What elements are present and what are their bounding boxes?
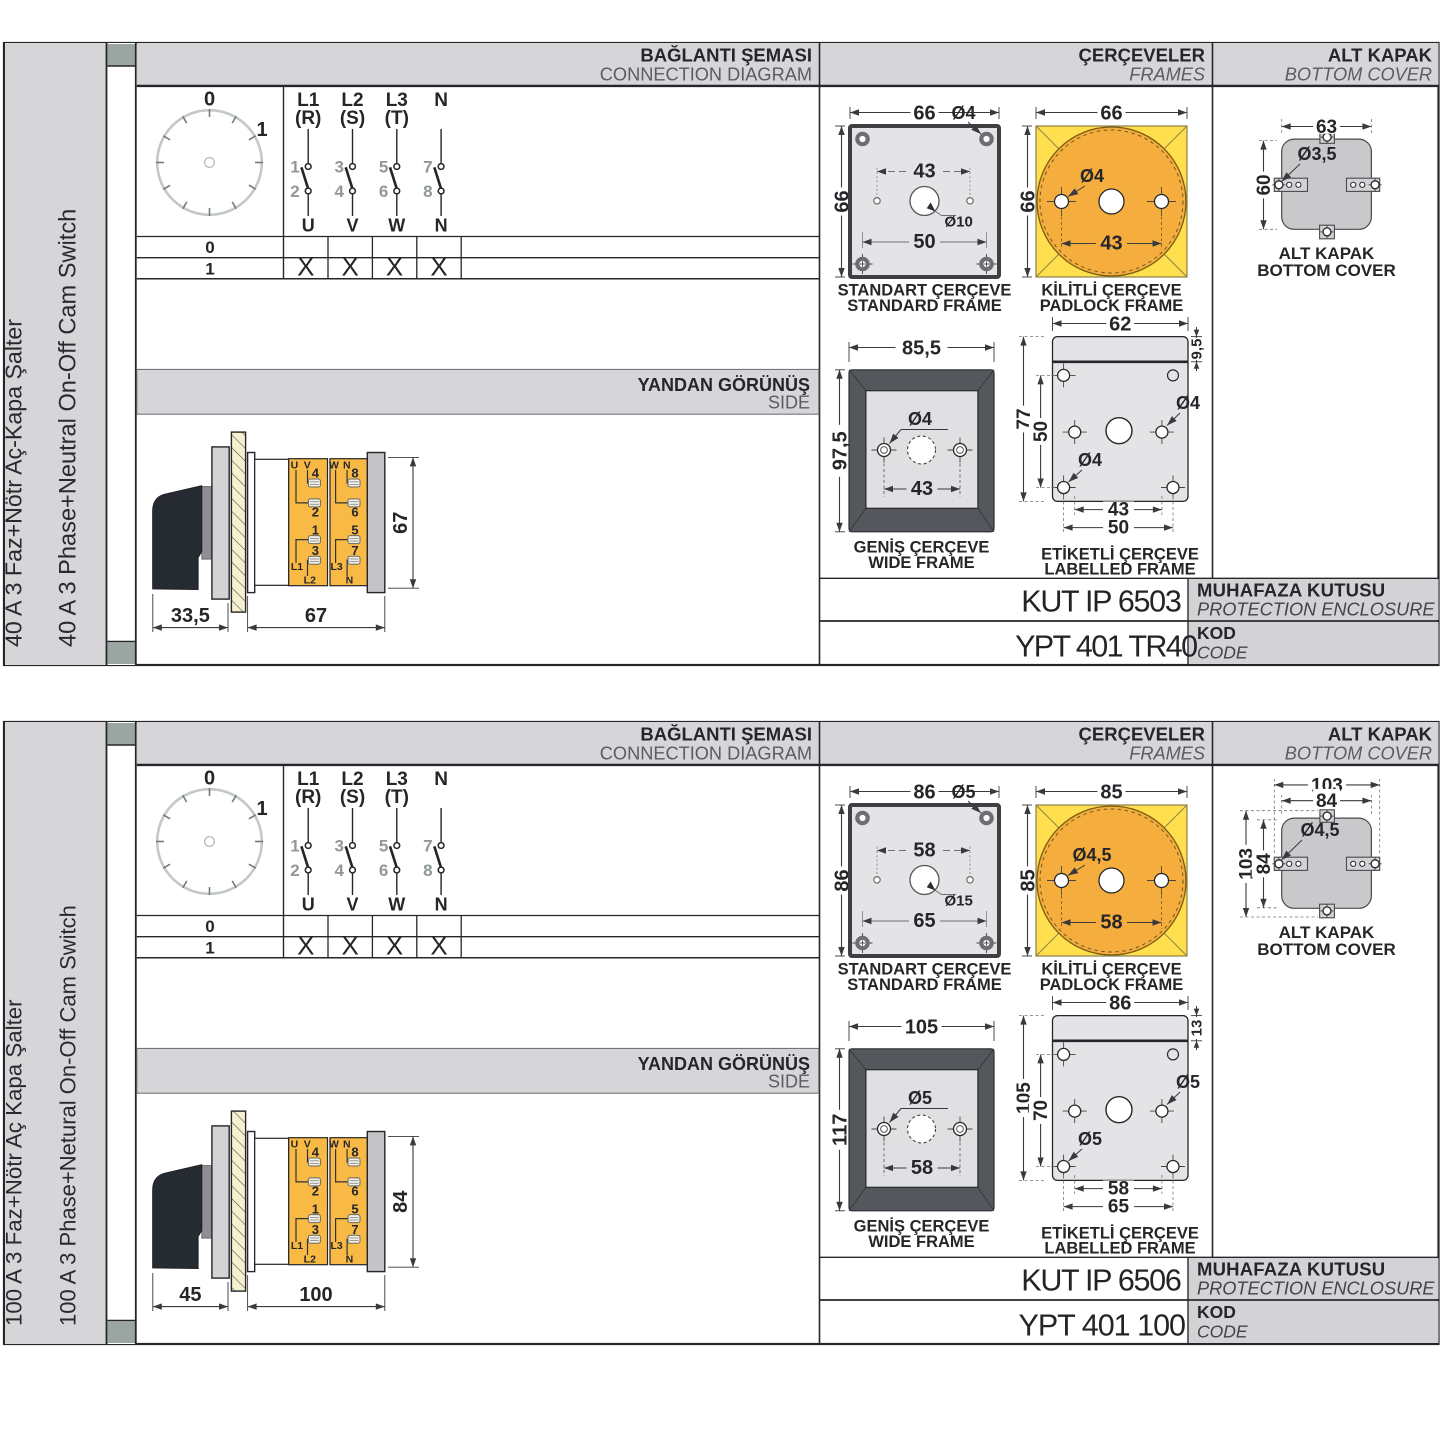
svg-text:CODE: CODE bbox=[1197, 1322, 1248, 1342]
svg-text:45: 45 bbox=[179, 1284, 201, 1306]
svg-text:43: 43 bbox=[911, 478, 933, 500]
svg-text:U: U bbox=[291, 1139, 299, 1151]
svg-text:N: N bbox=[435, 216, 448, 236]
svg-text:8: 8 bbox=[351, 466, 358, 481]
svg-text:6: 6 bbox=[351, 1184, 358, 1199]
svg-text:105: 105 bbox=[905, 1016, 938, 1038]
svg-text:5: 5 bbox=[379, 837, 388, 856]
svg-text:4: 4 bbox=[335, 182, 345, 201]
svg-text:Ø4: Ø4 bbox=[1080, 166, 1104, 186]
svg-text:67: 67 bbox=[390, 512, 412, 534]
svg-text:V: V bbox=[304, 460, 311, 472]
svg-text:1: 1 bbox=[256, 119, 267, 141]
svg-text:L3: L3 bbox=[330, 1240, 342, 1252]
svg-text:8: 8 bbox=[423, 861, 432, 880]
svg-text:7: 7 bbox=[351, 543, 358, 558]
svg-text:ALT KAPAK: ALT KAPAK bbox=[1279, 923, 1375, 942]
svg-text:BOTTOM COVER: BOTTOM COVER bbox=[1257, 940, 1396, 959]
svg-text:W: W bbox=[388, 216, 405, 236]
svg-text:7: 7 bbox=[423, 837, 432, 856]
svg-text:66: 66 bbox=[913, 102, 935, 124]
svg-text:62: 62 bbox=[1109, 313, 1131, 335]
svg-text:43: 43 bbox=[913, 161, 935, 183]
svg-text:85,5: 85,5 bbox=[902, 337, 941, 359]
svg-text:2: 2 bbox=[290, 182, 299, 201]
svg-text:50: 50 bbox=[913, 231, 935, 253]
svg-text:BOTTOM COVER: BOTTOM COVER bbox=[1285, 65, 1432, 85]
svg-text:66: 66 bbox=[1100, 102, 1122, 124]
svg-text:2: 2 bbox=[290, 861, 299, 880]
svg-text:117: 117 bbox=[829, 1114, 851, 1146]
svg-text:6: 6 bbox=[379, 182, 388, 201]
svg-text:0: 0 bbox=[204, 89, 215, 111]
svg-text:Ø4: Ø4 bbox=[1078, 450, 1102, 470]
svg-text:N: N bbox=[434, 769, 448, 790]
svg-text:N: N bbox=[346, 1254, 354, 1266]
svg-text:Ø5: Ø5 bbox=[1078, 1129, 1102, 1149]
svg-text:13: 13 bbox=[1189, 1020, 1206, 1037]
svg-text:7: 7 bbox=[351, 1222, 358, 1237]
svg-text:60: 60 bbox=[1254, 174, 1275, 195]
svg-text:Ø4: Ø4 bbox=[1176, 393, 1200, 413]
svg-text:(R): (R) bbox=[295, 108, 321, 129]
svg-text:Ø4: Ø4 bbox=[908, 409, 932, 429]
svg-text:100: 100 bbox=[299, 1284, 332, 1306]
svg-text:STANDARD FRAME: STANDARD FRAME bbox=[847, 976, 1002, 994]
svg-text:5: 5 bbox=[379, 158, 388, 177]
svg-text:84: 84 bbox=[1254, 853, 1275, 875]
svg-text:WIDE FRAME: WIDE FRAME bbox=[868, 554, 974, 572]
svg-text:L3: L3 bbox=[330, 561, 342, 573]
svg-text:86: 86 bbox=[1109, 992, 1131, 1014]
svg-text:Ø4: Ø4 bbox=[951, 103, 975, 123]
svg-text:67: 67 bbox=[305, 605, 327, 627]
svg-text:33,5: 33,5 bbox=[171, 605, 210, 627]
svg-text:YPT 401 TR40: YPT 401 TR40 bbox=[1015, 630, 1197, 664]
svg-text:L2: L2 bbox=[304, 575, 316, 587]
svg-text:Ø10: Ø10 bbox=[945, 214, 973, 231]
svg-text:X: X bbox=[430, 252, 447, 282]
svg-text:1: 1 bbox=[312, 1202, 319, 1217]
svg-text:100 A 3 Phase+Netural On-Off C: 100 A 3 Phase+Netural On-Off Cam Switch bbox=[56, 905, 81, 1326]
svg-text:2: 2 bbox=[312, 505, 319, 520]
svg-text:N: N bbox=[346, 575, 354, 587]
svg-text:X: X bbox=[342, 252, 359, 282]
svg-text:X: X bbox=[386, 252, 403, 282]
svg-text:FRAMES: FRAMES bbox=[1129, 65, 1205, 85]
svg-text:BAĞLANTI ŞEMASI: BAĞLANTI ŞEMASI bbox=[640, 45, 812, 66]
svg-text:WIDE FRAME: WIDE FRAME bbox=[868, 1233, 974, 1251]
svg-text:YPT 401 100: YPT 401 100 bbox=[1019, 1309, 1186, 1343]
svg-text:40 A 3 Faz+Nötr Aç-Kapa Şalter: 40 A 3 Faz+Nötr Aç-Kapa Şalter bbox=[1, 319, 27, 647]
svg-text:U: U bbox=[291, 460, 299, 472]
svg-text:LABELLED FRAME: LABELLED FRAME bbox=[1044, 1240, 1195, 1258]
svg-text:BAĞLANTI ŞEMASI: BAĞLANTI ŞEMASI bbox=[640, 724, 812, 745]
svg-text:84: 84 bbox=[390, 1190, 412, 1213]
svg-text:85: 85 bbox=[1100, 781, 1122, 803]
svg-text:0: 0 bbox=[205, 238, 214, 257]
svg-text:58: 58 bbox=[913, 840, 935, 862]
svg-text:BOTTOM COVER: BOTTOM COVER bbox=[1285, 744, 1432, 764]
svg-text:(S): (S) bbox=[340, 787, 365, 808]
svg-text:Ø4,5: Ø4,5 bbox=[1300, 820, 1339, 840]
svg-text:5: 5 bbox=[351, 1202, 358, 1217]
svg-text:5: 5 bbox=[351, 523, 358, 538]
svg-text:65: 65 bbox=[1108, 1197, 1130, 1218]
svg-text:3: 3 bbox=[335, 837, 344, 856]
svg-text:1: 1 bbox=[205, 939, 214, 958]
svg-text:6: 6 bbox=[351, 505, 358, 520]
svg-text:W: W bbox=[388, 895, 405, 915]
svg-text:N: N bbox=[343, 1139, 351, 1151]
svg-text:MUHAFAZA KUTUSU: MUHAFAZA KUTUSU bbox=[1197, 1259, 1385, 1280]
svg-text:0: 0 bbox=[204, 768, 215, 790]
svg-text:9,5: 9,5 bbox=[1189, 339, 1206, 360]
svg-text:Ø4,5: Ø4,5 bbox=[1072, 845, 1111, 865]
svg-text:4: 4 bbox=[335, 861, 345, 880]
svg-text:1: 1 bbox=[290, 837, 299, 856]
svg-text:(T): (T) bbox=[385, 787, 409, 808]
svg-text:MUHAFAZA KUTUSU: MUHAFAZA KUTUSU bbox=[1197, 580, 1385, 601]
svg-text:(T): (T) bbox=[385, 108, 409, 129]
svg-text:50: 50 bbox=[1108, 518, 1129, 539]
svg-text:Ø5: Ø5 bbox=[1176, 1072, 1200, 1092]
svg-text:1: 1 bbox=[205, 260, 214, 279]
svg-text:KOD: KOD bbox=[1197, 623, 1236, 643]
svg-text:V: V bbox=[346, 216, 358, 236]
svg-text:3: 3 bbox=[312, 543, 319, 558]
svg-text:N: N bbox=[343, 460, 351, 472]
svg-text:4: 4 bbox=[312, 1145, 320, 1160]
svg-text:V: V bbox=[304, 1139, 311, 1151]
svg-text:97,5: 97,5 bbox=[829, 431, 851, 470]
svg-text:SIDE: SIDE bbox=[768, 1072, 810, 1092]
svg-text:X: X bbox=[342, 931, 359, 961]
svg-text:6: 6 bbox=[379, 861, 388, 880]
svg-text:FRAMES: FRAMES bbox=[1129, 744, 1205, 764]
svg-text:W: W bbox=[329, 1139, 339, 1151]
svg-text:ÇERÇEVELER: ÇERÇEVELER bbox=[1079, 45, 1205, 66]
svg-text:Ø15: Ø15 bbox=[945, 893, 973, 910]
svg-text:X: X bbox=[386, 931, 403, 961]
svg-text:V: V bbox=[346, 895, 358, 915]
svg-text:KUT IP 6503: KUT IP 6503 bbox=[1021, 584, 1181, 618]
svg-text:KOD: KOD bbox=[1197, 1302, 1236, 1322]
svg-text:X: X bbox=[297, 931, 314, 961]
svg-text:1: 1 bbox=[256, 798, 267, 820]
svg-text:50: 50 bbox=[1031, 421, 1052, 442]
svg-text:0: 0 bbox=[205, 917, 214, 936]
svg-text:1: 1 bbox=[290, 158, 299, 177]
svg-text:40 A 3 Phase+Neutral On-Off Ca: 40 A 3 Phase+Neutral On-Off Cam Switch bbox=[56, 209, 82, 647]
svg-text:(R): (R) bbox=[295, 787, 321, 808]
svg-text:Ø5: Ø5 bbox=[908, 1088, 932, 1108]
svg-text:Ø5: Ø5 bbox=[951, 782, 975, 802]
svg-text:3: 3 bbox=[312, 1222, 319, 1237]
svg-text:L1: L1 bbox=[291, 561, 303, 573]
svg-text:58: 58 bbox=[911, 1157, 933, 1179]
svg-text:2: 2 bbox=[312, 1184, 319, 1199]
svg-text:N: N bbox=[435, 895, 448, 915]
svg-text:CONNECTION DIAGRAM: CONNECTION DIAGRAM bbox=[600, 744, 812, 764]
svg-text:W: W bbox=[329, 460, 339, 472]
svg-text:N: N bbox=[434, 90, 448, 111]
svg-text:1: 1 bbox=[312, 523, 319, 538]
svg-text:43: 43 bbox=[1100, 233, 1122, 255]
svg-text:KUT IP 6506: KUT IP 6506 bbox=[1021, 1263, 1181, 1297]
svg-text:63: 63 bbox=[1316, 117, 1337, 138]
svg-text:STANDARD FRAME: STANDARD FRAME bbox=[847, 297, 1002, 315]
svg-text:X: X bbox=[430, 931, 447, 961]
svg-text:CODE: CODE bbox=[1197, 643, 1248, 663]
svg-text:X: X bbox=[297, 252, 314, 282]
svg-text:(S): (S) bbox=[340, 108, 365, 129]
svg-text:BOTTOM COVER: BOTTOM COVER bbox=[1257, 261, 1396, 280]
svg-text:Ø3,5: Ø3,5 bbox=[1297, 144, 1336, 164]
svg-text:L2: L2 bbox=[304, 1254, 316, 1266]
svg-text:70: 70 bbox=[1031, 1100, 1052, 1121]
svg-text:LABELLED FRAME: LABELLED FRAME bbox=[1044, 561, 1195, 579]
svg-text:84: 84 bbox=[1316, 791, 1338, 812]
svg-text:U: U bbox=[302, 895, 315, 915]
svg-text:8: 8 bbox=[351, 1145, 358, 1160]
svg-text:L1: L1 bbox=[291, 1240, 303, 1252]
svg-text:65: 65 bbox=[913, 910, 935, 932]
svg-text:58: 58 bbox=[1100, 912, 1122, 934]
svg-text:PROTECTION ENCLOSURE: PROTECTION ENCLOSURE bbox=[1197, 1279, 1435, 1299]
svg-text:U: U bbox=[302, 216, 315, 236]
svg-text:3: 3 bbox=[335, 158, 344, 177]
svg-text:ALT KAPAK: ALT KAPAK bbox=[1328, 724, 1433, 745]
svg-text:4: 4 bbox=[312, 466, 320, 481]
svg-text:7: 7 bbox=[423, 158, 432, 177]
svg-text:PROTECTION ENCLOSURE: PROTECTION ENCLOSURE bbox=[1197, 600, 1435, 620]
svg-text:86: 86 bbox=[913, 781, 935, 803]
svg-text:ALT KAPAK: ALT KAPAK bbox=[1279, 244, 1375, 263]
svg-text:ÇERÇEVELER: ÇERÇEVELER bbox=[1079, 724, 1205, 745]
svg-text:SIDE: SIDE bbox=[768, 393, 810, 413]
svg-text:100 A 3 Faz+Nötr Aç Kapa Şalte: 100 A 3 Faz+Nötr Aç Kapa Şalter bbox=[2, 999, 27, 1326]
svg-text:ALT KAPAK: ALT KAPAK bbox=[1328, 45, 1433, 66]
svg-text:CONNECTION DIAGRAM: CONNECTION DIAGRAM bbox=[600, 65, 812, 85]
svg-text:8: 8 bbox=[423, 182, 432, 201]
